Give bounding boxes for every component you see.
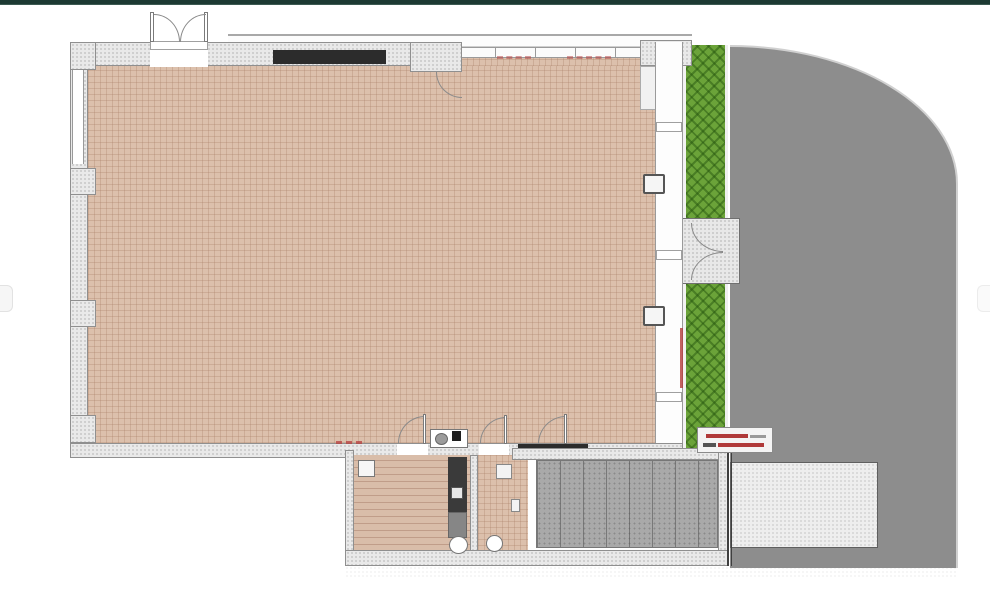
wall-top — [70, 42, 460, 66]
wc-fixture-1 — [449, 536, 468, 554]
window-wall — [455, 47, 658, 58]
main-hall-floor — [88, 64, 655, 443]
wall-lower-bottom — [345, 550, 728, 566]
wall-lower-left — [345, 450, 354, 566]
garden-gate — [682, 218, 740, 284]
red-dimension-top-1 — [497, 56, 531, 59]
shower-box — [358, 460, 375, 477]
right-wall-window-2 — [656, 250, 682, 260]
gray-utility-unit — [448, 512, 467, 538]
door-leaf-2 — [504, 415, 507, 444]
fence-line-2 — [731, 452, 732, 566]
rear-patio — [730, 462, 878, 548]
right-wall-window-1 — [656, 122, 682, 132]
corner-block-top-left — [70, 42, 96, 70]
cabinet-small-1 — [496, 464, 512, 479]
red-vertical-dimension — [680, 328, 683, 388]
label-text-tail-1 — [750, 435, 766, 438]
annotation-label-box — [697, 427, 773, 453]
gate-door-arc-upper — [691, 223, 723, 252]
gate-door-arc-lower — [691, 252, 723, 280]
pilaster-left-1 — [70, 168, 96, 195]
door-leaf-3 — [564, 414, 567, 444]
right-edge-tab[interactable] — [977, 285, 990, 312]
pier-block — [410, 42, 462, 72]
garage-floor — [536, 460, 718, 548]
red-dimension-top-2 — [567, 56, 611, 59]
pilaster-left-2 — [70, 300, 96, 327]
entry-door-arc-left — [154, 14, 180, 42]
red-dimension-bottom-wall — [336, 441, 362, 444]
top-bar — [0, 0, 990, 5]
wall-divider-1 — [470, 455, 478, 552]
column-1 — [643, 174, 665, 194]
column-2 — [643, 306, 665, 326]
dark-utility-unit — [448, 457, 467, 512]
sink-basin — [435, 433, 448, 445]
right-wall-window-3 — [656, 392, 682, 402]
label-red-text-line-1 — [706, 434, 748, 438]
door-leaf-1 — [423, 414, 426, 444]
wall-garage-top — [512, 448, 728, 460]
black-counter-top-wall — [273, 50, 386, 64]
fence-line-1 — [727, 452, 729, 566]
sink-unit — [430, 429, 468, 448]
window-left — [72, 60, 84, 164]
entry-door-sill — [150, 41, 208, 50]
utility-inset — [451, 487, 463, 499]
entry-door-arc-right — [180, 14, 206, 42]
label-red-text-line-2 — [718, 443, 764, 447]
counter-appliance — [452, 431, 461, 441]
corner-block-bottom-left — [70, 415, 96, 443]
wc-fixture-2 — [486, 535, 503, 552]
wall-right — [655, 42, 683, 443]
left-edge-tab[interactable] — [0, 285, 13, 312]
main-hall-floor-upper-strip — [455, 58, 655, 66]
cabinet-small-2 — [511, 499, 520, 512]
label-text-prefix-2 — [703, 443, 716, 447]
floor-plan-page — [0, 0, 990, 600]
